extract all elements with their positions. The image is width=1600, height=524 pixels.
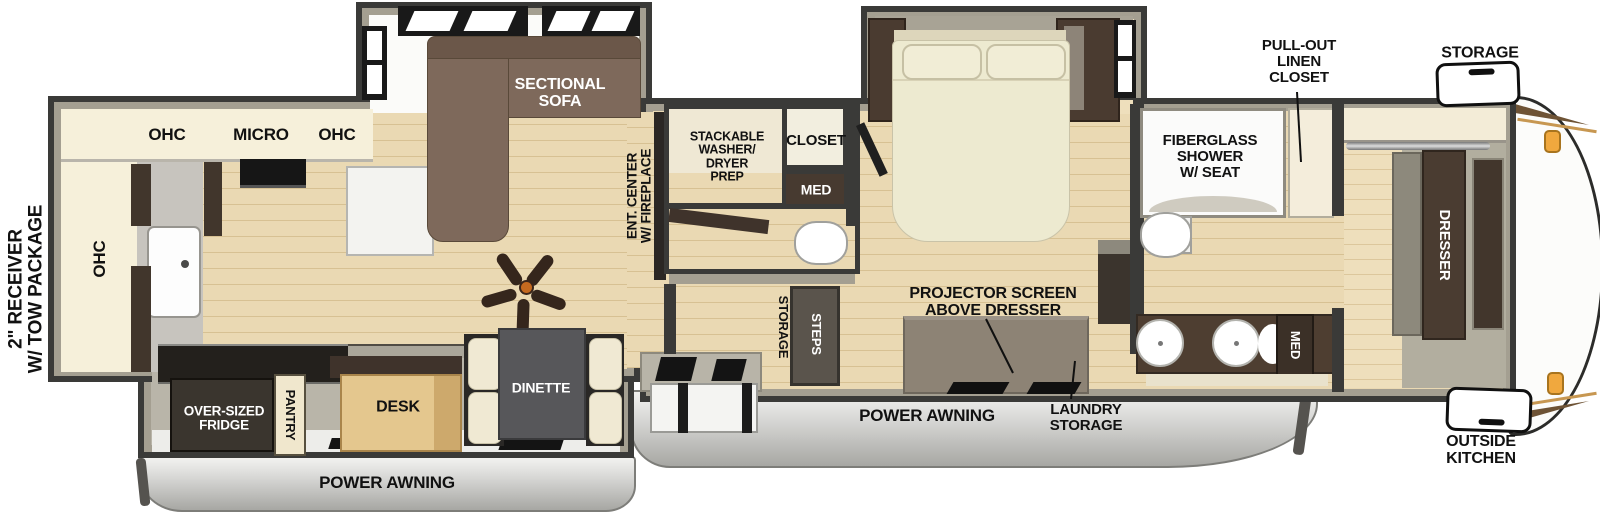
vanity-toe-kick: [1146, 374, 1328, 386]
dresser-label: DRESSER: [1436, 209, 1452, 280]
micro-label: MICRO: [233, 126, 289, 144]
hatch-handle-icon: [1478, 419, 1504, 426]
kitchen-sink-icon: [147, 226, 201, 318]
ohc-right-label: OHC: [318, 126, 355, 144]
entry-door-post: [742, 383, 752, 433]
entry-door-post: [678, 383, 688, 433]
bench-cushion: [589, 338, 622, 390]
closet-rod-icon: [1346, 142, 1490, 150]
slide-face-window: [498, 440, 563, 450]
window-pane: [1118, 61, 1132, 92]
window-pane: [464, 11, 517, 31]
fridge-label: OVER-SIZED FRIDGE: [184, 405, 265, 434]
kitchen-faucet-icon: [181, 260, 189, 268]
bath-wall-right-top: [1332, 104, 1344, 216]
sink-drain: [1234, 341, 1239, 346]
hall-wall: [664, 284, 676, 354]
fan-hub-icon: [519, 280, 534, 295]
cooktop-icon: [240, 159, 306, 188]
mid-bath-wall-band: [669, 274, 855, 284]
storage-steps-label: STORAGE: [776, 296, 790, 359]
ohc-left-label: OHC: [148, 126, 185, 144]
slide-window-group-1: [398, 6, 528, 36]
closet-side-panel: [1392, 152, 1422, 336]
rear-awning-label: POWER AWNING: [319, 474, 455, 492]
front-toilet-icon: [1140, 212, 1192, 258]
bed-pillow: [986, 44, 1066, 80]
bedroom-wall-left: [846, 104, 860, 226]
outside-kitchen-label: OUTSIDE KITCHEN: [1446, 433, 1516, 467]
toilet-icon: [794, 221, 848, 265]
desk-label: DESK: [376, 398, 420, 415]
bench-cushion: [589, 392, 622, 444]
window-pane: [367, 31, 382, 60]
linen-closet-label: PULL-OUT LINEN CLOSET: [1262, 38, 1336, 86]
dresser-base-mark: [947, 382, 1010, 394]
bench-cushion: [468, 392, 502, 444]
shower-label: FIBERGLASS SHOWER W/ SEAT: [1163, 133, 1258, 181]
marker-light-top-icon: [1544, 130, 1561, 153]
ohc-side-label: OHC: [91, 240, 109, 277]
linen-closet: [1288, 108, 1334, 218]
cabinet-block-3: [204, 162, 222, 236]
closet-label: CLOSET: [786, 133, 846, 149]
landing-mark: [655, 357, 697, 381]
front-med-label: MED: [1288, 331, 1302, 359]
front-dark-panel: [1472, 158, 1504, 330]
cabinet-block-2: [131, 266, 151, 372]
marker-light-bottom-icon: [1547, 372, 1564, 395]
mid-med-label: MED: [801, 183, 832, 198]
bed-pillow: [902, 44, 982, 80]
fifth-wheel-floorplan: 2" RECEIVER W/ TOW PACKAGE OHC MICRO OHC…: [0, 0, 1600, 524]
steps-label: STEPS: [809, 313, 823, 355]
window-pane: [548, 11, 591, 31]
bath-wall-right-bottom: [1332, 308, 1344, 392]
sectional-sofa-label: SECTIONAL SOFA: [515, 76, 606, 110]
closet-shelf: [1344, 108, 1506, 143]
hatch-handle-icon: [1468, 68, 1494, 75]
sofa-slide-side-window: [362, 26, 387, 100]
sectional-sofa-chaise: [427, 58, 509, 242]
desk-shade: [434, 376, 460, 450]
ceiling-fan-icon: [494, 261, 560, 321]
window-pane: [592, 11, 635, 31]
washer-prep-label: STACKABLE WASHER/ DRYER PREP: [690, 130, 764, 184]
storage-hatch-outline: [1435, 61, 1520, 108]
laundry-storage-label: LAUNDRY STORAGE: [1050, 402, 1123, 434]
dresser-base-mark: [1027, 382, 1082, 394]
projector-label: PROJECTOR SCREEN ABOVE DRESSER: [909, 285, 1076, 319]
slide-window-group-2: [542, 6, 640, 36]
kitchen-island: [346, 166, 434, 256]
cabinet-block-1: [131, 164, 151, 226]
window-pane: [406, 11, 459, 31]
dinette-label: DINETTE: [512, 381, 571, 396]
sink-drain: [1158, 341, 1163, 346]
storage-front-label: STORAGE: [1441, 44, 1518, 61]
main-awning-label: POWER AWNING: [859, 407, 995, 425]
window-pane: [1118, 25, 1132, 56]
bench-cushion: [468, 338, 502, 390]
bed-slide-side-window: [1114, 20, 1136, 98]
landing-mark: [711, 359, 746, 381]
hitch-label: 2" RECEIVER W/ TOW PACKAGE: [7, 205, 48, 374]
ent-center-label: ENT. CENTER W/ FIREPLACE: [626, 149, 655, 243]
window-pane: [367, 65, 382, 94]
shower-pan-curve: [1149, 196, 1277, 212]
pantry-label: PANTRY: [283, 390, 297, 441]
outside-kitchen-hatch-outline: [1445, 387, 1532, 434]
